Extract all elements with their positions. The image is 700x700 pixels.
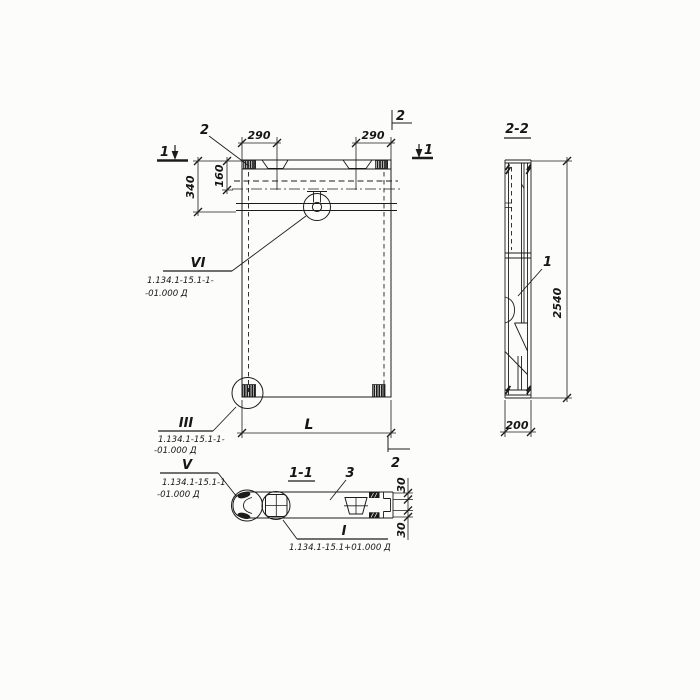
section-cut-1-left-label: 1 bbox=[160, 145, 169, 160]
embed-plate-bottom-left bbox=[243, 385, 256, 397]
detail-i-ref1: 1.134.1-15.1+01.000 Д bbox=[289, 543, 391, 553]
embed-block-right-top bbox=[369, 493, 380, 499]
leader-detail-iii bbox=[213, 407, 236, 431]
detail-iii-ref1: 1.134.1-15.1-1- bbox=[158, 435, 225, 445]
callout-plate-2: 2 bbox=[200, 123, 209, 138]
front-view-linework bbox=[232, 137, 400, 409]
dim-200: 200 bbox=[506, 419, 529, 432]
recess-left bbox=[262, 160, 288, 169]
dim-160: 160 bbox=[213, 164, 226, 187]
technical-drawing: 290 290 340 160 L 1 1 2 2 2 VI bbox=[0, 0, 700, 700]
dim-290-right: 290 bbox=[362, 129, 385, 142]
section-1-1-title: 1-1 bbox=[289, 466, 313, 481]
leader-detail-vi bbox=[232, 216, 306, 271]
panel-outline bbox=[242, 160, 391, 397]
dim-30-bottom: 30 bbox=[395, 522, 408, 538]
section-2-2: 2-2 1 2540 200 bbox=[500, 122, 572, 437]
section-2-2-linework bbox=[505, 160, 531, 398]
detail-vi-ref1: 1.134.1-15.1-1- bbox=[147, 276, 214, 286]
dim-340: 340 bbox=[184, 175, 197, 198]
detail-v-ref1: 1.134.1-15.1-1 bbox=[162, 478, 226, 488]
section-1-1: 1-1 3 30 30 V bbox=[157, 458, 413, 553]
drawing-sheet: 290 290 340 160 L 1 1 2 2 2 VI bbox=[0, 0, 700, 700]
leader-detail-i bbox=[283, 520, 297, 539]
embed-plate-bottom-right bbox=[373, 385, 386, 397]
bar-right-cap bbox=[382, 492, 393, 518]
dim-2540: 2540 bbox=[551, 287, 564, 318]
detail-v-ref2: -01.000 Д bbox=[157, 490, 200, 500]
detail-vi-ref2: -01.000 Д bbox=[145, 289, 188, 299]
front-callouts: 1 1 2 2 2 VI 1.134.1-15.1-1- -01.000 Д I… bbox=[145, 109, 433, 471]
section-2-2-title: 2-2 bbox=[505, 122, 529, 137]
detail-circle-vi bbox=[304, 194, 331, 221]
leader-item-3 bbox=[330, 480, 346, 500]
dim-290-left: 290 bbox=[248, 129, 271, 142]
embed-block-right-bottom bbox=[369, 512, 380, 518]
embed-plate-top-right bbox=[376, 161, 388, 169]
embed-plate-top-left bbox=[244, 161, 256, 169]
front-dimensions: 290 290 340 160 L bbox=[184, 129, 396, 438]
leader-callout-2 bbox=[209, 136, 249, 166]
item-1-label: 1 bbox=[543, 255, 552, 270]
section-cut-2-top-label: 2 bbox=[396, 109, 405, 124]
detail-i-numeral: I bbox=[342, 524, 347, 539]
section-cut-1-right-label: 1 bbox=[424, 143, 433, 158]
dim-length: L bbox=[305, 417, 314, 433]
recess-right bbox=[343, 160, 372, 169]
detail-iii-numeral: III bbox=[179, 416, 194, 431]
detail-iii-ref2: -01.000 Д bbox=[154, 446, 197, 456]
dim-30-top: 30 bbox=[395, 477, 408, 493]
lifting-loop-detail bbox=[304, 192, 331, 221]
item-3-label: 3 bbox=[345, 466, 354, 481]
detail-vi-numeral: VI bbox=[191, 256, 206, 271]
detail-v-numeral: V bbox=[182, 458, 193, 473]
section-cut-2-bottom-label: 2 bbox=[391, 456, 400, 471]
